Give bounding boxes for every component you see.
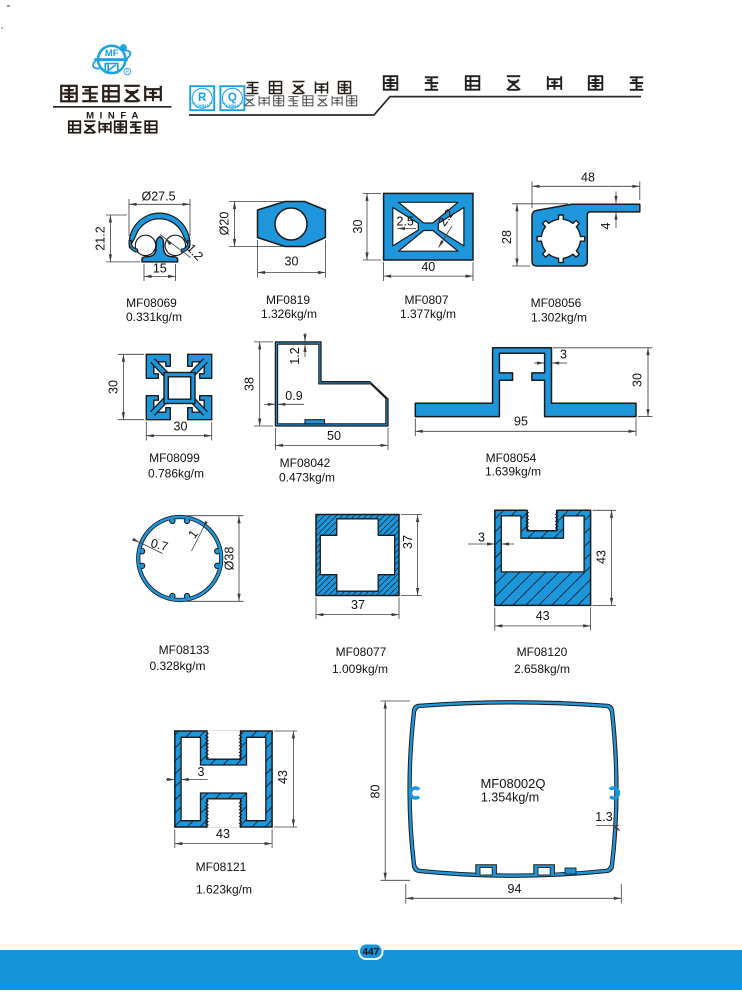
svg-text:38: 38 bbox=[243, 377, 257, 391]
svg-text:1.377kg/m: 1.377kg/m bbox=[400, 307, 456, 321]
svg-text:Q: Q bbox=[228, 92, 237, 104]
svg-text:43: 43 bbox=[595, 550, 609, 564]
svg-text:1.326kg/m: 1.326kg/m bbox=[261, 307, 317, 321]
svg-text:CHINA: CHINA bbox=[225, 104, 240, 109]
svg-text:MF08099: MF08099 bbox=[149, 451, 200, 465]
svg-text:M I N F A: M I N F A bbox=[86, 111, 140, 122]
svg-text:MF08054: MF08054 bbox=[486, 451, 537, 465]
svg-text:28: 28 bbox=[500, 230, 514, 244]
svg-text:43: 43 bbox=[216, 827, 230, 841]
svg-text:15: 15 bbox=[153, 261, 167, 275]
svg-text:40: 40 bbox=[421, 260, 435, 274]
svg-text:MF08002Q: MF08002Q bbox=[480, 776, 545, 791]
svg-text:CHINA: CHINA bbox=[195, 104, 210, 109]
svg-text:37: 37 bbox=[351, 598, 365, 612]
svg-text:MF08042: MF08042 bbox=[280, 456, 331, 470]
svg-text:1.354kg/m: 1.354kg/m bbox=[481, 791, 539, 805]
svg-text:0.9: 0.9 bbox=[285, 389, 302, 403]
svg-text:80: 80 bbox=[369, 785, 383, 799]
svg-text:3: 3 bbox=[560, 348, 567, 362]
svg-text:MF08133: MF08133 bbox=[159, 643, 210, 657]
svg-text:0.331kg/m: 0.331kg/m bbox=[126, 310, 182, 324]
svg-text:30: 30 bbox=[107, 380, 121, 394]
svg-text:3: 3 bbox=[478, 531, 485, 545]
svg-text:MF08121: MF08121 bbox=[196, 860, 247, 874]
svg-text:30: 30 bbox=[174, 420, 188, 434]
svg-text:1.302kg/m: 1.302kg/m bbox=[531, 311, 587, 325]
svg-text:MF08120: MF08120 bbox=[517, 645, 568, 659]
svg-text:30: 30 bbox=[351, 220, 365, 234]
svg-text:3: 3 bbox=[198, 765, 205, 779]
svg-text:447: 447 bbox=[362, 947, 379, 958]
svg-text:43: 43 bbox=[536, 609, 550, 623]
svg-text:Ø20: Ø20 bbox=[218, 212, 232, 236]
svg-text:MF08077: MF08077 bbox=[336, 645, 387, 659]
svg-text:30: 30 bbox=[285, 255, 299, 269]
svg-text:21.2: 21.2 bbox=[94, 226, 108, 250]
svg-text:1.623kg/m: 1.623kg/m bbox=[196, 883, 252, 897]
svg-text:MF08056: MF08056 bbox=[531, 296, 582, 310]
svg-text:2.658kg/m: 2.658kg/m bbox=[514, 662, 570, 676]
svg-text:Ø38: Ø38 bbox=[223, 547, 237, 571]
svg-text:MF: MF bbox=[105, 48, 119, 59]
svg-text:48: 48 bbox=[581, 171, 595, 185]
svg-text:0.473kg/m: 0.473kg/m bbox=[279, 471, 335, 485]
svg-text:MF08069: MF08069 bbox=[126, 296, 177, 310]
svg-text:1.009kg/m: 1.009kg/m bbox=[332, 662, 388, 676]
svg-text:MF0819: MF0819 bbox=[266, 293, 310, 307]
svg-text:95: 95 bbox=[514, 415, 528, 429]
svg-text:MF0807: MF0807 bbox=[404, 293, 448, 307]
svg-text:R: R bbox=[198, 92, 207, 104]
svg-text:1.3: 1.3 bbox=[595, 810, 612, 824]
svg-text:94: 94 bbox=[508, 882, 522, 896]
svg-text:4: 4 bbox=[599, 222, 613, 229]
svg-text:0.328kg/m: 0.328kg/m bbox=[149, 659, 205, 673]
svg-text:1.2: 1.2 bbox=[288, 347, 302, 364]
svg-text:R: R bbox=[125, 70, 129, 76]
svg-text:43: 43 bbox=[276, 770, 290, 784]
svg-text:37: 37 bbox=[401, 535, 415, 549]
svg-text:1.639kg/m: 1.639kg/m bbox=[485, 465, 541, 479]
svg-text:30: 30 bbox=[631, 373, 645, 387]
svg-text:Ø27.5: Ø27.5 bbox=[141, 190, 175, 204]
svg-text:0.786kg/m: 0.786kg/m bbox=[148, 467, 204, 481]
svg-text:50: 50 bbox=[327, 429, 341, 443]
svg-text:2.5: 2.5 bbox=[397, 214, 414, 228]
